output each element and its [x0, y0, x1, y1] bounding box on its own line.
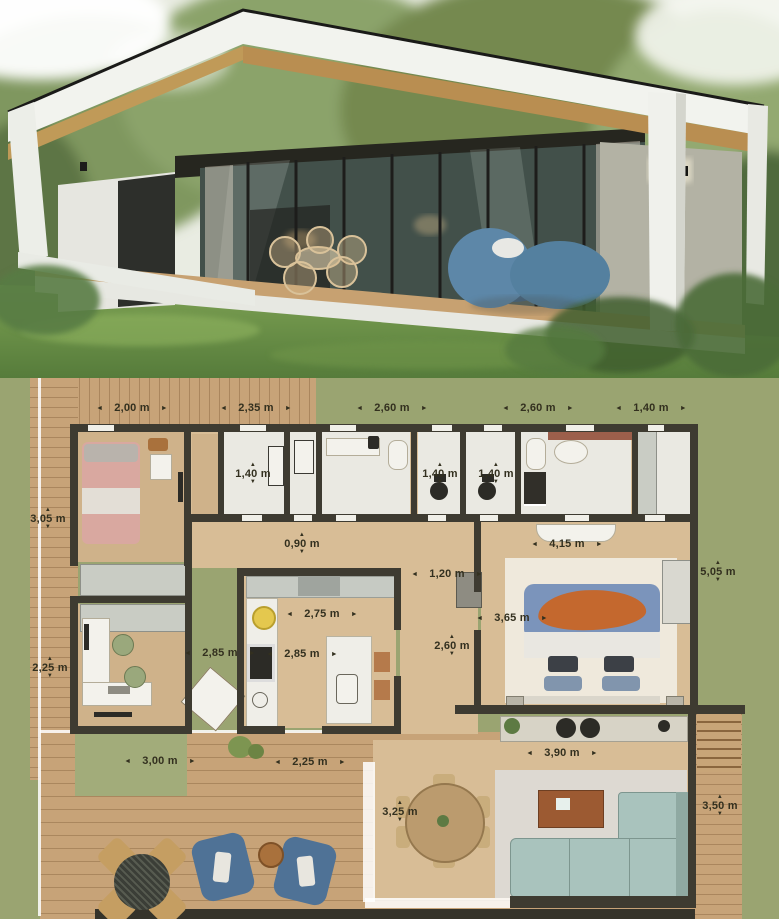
wall-west-office	[70, 596, 78, 734]
glass-wall-living-west	[363, 762, 375, 902]
wall-kitchen-east-b	[394, 676, 401, 734]
wardrobe-bedroom1	[80, 564, 188, 596]
wall-office-east	[185, 520, 192, 734]
office-chair-1	[112, 634, 134, 656]
bed-single-blanket	[82, 488, 140, 514]
dim-wc1: 1,40 m	[422, 462, 457, 486]
bed-pillow-dark-2	[604, 656, 634, 672]
deck-plant-2	[248, 744, 264, 759]
kitchen-appliance-icon	[252, 692, 268, 708]
deck-edge-left	[38, 378, 41, 916]
wall-west-bedroom1	[70, 424, 78, 566]
sofa-chaise	[618, 792, 680, 844]
wall-office-north	[70, 596, 190, 603]
lounger-2-pillow	[296, 855, 315, 887]
bath2-toilet-icon	[526, 438, 546, 470]
sideboard-bowl-1-icon	[556, 718, 576, 738]
bedroom1-table	[150, 454, 172, 480]
coffee-table-decor	[556, 798, 570, 810]
bed-double	[524, 584, 660, 704]
outdoor-dining-set	[100, 840, 184, 919]
dim-deck-hall: 2,25 m	[274, 756, 346, 768]
wall-east	[690, 424, 698, 713]
dim-right-1: 5,05 m	[700, 560, 735, 584]
kitchen-hood-icon	[298, 576, 340, 596]
dining-plant-icon	[437, 815, 449, 827]
window-3	[330, 425, 356, 431]
wall-office-south	[70, 726, 192, 734]
window-5	[484, 425, 502, 431]
dim-living-width: 3,90 m	[526, 747, 598, 759]
lounger-1-pillow	[213, 851, 232, 883]
bath1-toilet-icon	[388, 440, 408, 470]
coffee-table	[538, 790, 604, 828]
kitchen-sink-bowl-icon	[252, 606, 276, 630]
wall-v4	[411, 424, 417, 522]
sofa-back	[676, 792, 688, 896]
window-4	[432, 425, 452, 431]
door-wc1	[428, 515, 446, 521]
dim-deck-office: 3,00 m	[124, 755, 196, 767]
window-1	[88, 425, 114, 431]
floor-plan: 2,00 m 2,35 m 2,60 m 2,60 m 1,40 m 3,05 …	[0, 378, 779, 919]
dim-right-2: 3,50 m	[702, 794, 737, 818]
sofa-main	[510, 838, 690, 898]
bed-single-pillow	[84, 444, 138, 462]
entry-stairs	[697, 714, 741, 772]
master-wardrobe	[662, 560, 692, 624]
window-2	[240, 425, 266, 431]
office-chair-2	[124, 666, 146, 688]
bed-headboard	[524, 696, 660, 704]
wall-v6	[515, 424, 521, 522]
wall-kitchen-east-a	[394, 568, 401, 630]
bed-pillow-blue-2	[602, 676, 640, 691]
dim-bed-width: 3,65 m	[476, 612, 548, 624]
dim-kitchen-run-left: 2,85 m	[184, 647, 256, 659]
bath1-shower-icon	[368, 436, 379, 449]
dim-master-width: 4,15 m	[531, 538, 603, 550]
wall-living-east	[688, 714, 696, 908]
wall-v2	[284, 424, 290, 522]
dim-left-1: 3,05 m	[30, 507, 65, 531]
bed-sheet	[524, 632, 660, 658]
wall-master-west-b	[474, 630, 481, 713]
wall-master-west-a	[474, 520, 481, 592]
door-bathroom2	[565, 515, 589, 521]
bath2-shelf-icon	[524, 472, 546, 506]
outdoor-table	[114, 854, 170, 910]
bed-pillow-blue-1	[544, 676, 582, 691]
door-closet	[242, 515, 262, 521]
wall-north	[70, 424, 698, 432]
wall-living-south	[510, 896, 696, 908]
wall-v7	[632, 424, 638, 522]
office-laptop-icon	[108, 686, 130, 694]
dim-left-2: 2,25 m	[32, 656, 67, 680]
sideboard-bowl-2-icon	[580, 718, 600, 738]
bath2-counter	[548, 432, 632, 440]
bar-stool-2	[374, 680, 390, 700]
dim-top-5: 1,40 m	[615, 402, 687, 414]
dim-kitchen-width: 2,75 m	[286, 608, 358, 620]
bedroom1-tv-icon	[178, 472, 183, 502]
office-monitor-icon	[84, 624, 89, 650]
dim-dining-depth: 3,25 m	[382, 800, 417, 824]
door-cabinet	[294, 515, 312, 521]
door-wc2	[480, 515, 498, 521]
sideboard-lamp-icon	[658, 720, 670, 732]
dim-top-3: 2,60 m	[356, 402, 428, 414]
sideboard-plant-icon	[504, 718, 520, 734]
house-photo-svg	[0, 0, 779, 378]
side-table-round	[258, 842, 284, 868]
wall-kitchen-north	[237, 568, 401, 576]
bath2-sink-icon	[554, 440, 588, 464]
deck-bottom-border	[95, 909, 695, 919]
dim-closet: 1,40 m	[235, 462, 270, 486]
cabinet-icon	[294, 440, 314, 474]
bedroom1-bench	[148, 438, 168, 451]
entry-closet-cabinet	[637, 430, 657, 520]
floor-walkin	[192, 434, 220, 518]
dim-top-1: 2,00 m	[96, 402, 168, 414]
bar-stool-1	[374, 652, 390, 672]
dim-corridor: 2,60 m	[434, 634, 469, 658]
door-bathroom1	[336, 515, 356, 521]
dim-kitchen-run-right: 2,85 m	[266, 648, 338, 660]
wall-kitchen-south-b	[322, 726, 401, 734]
dim-passage: 1,20 m	[411, 568, 483, 580]
wall-v5	[460, 424, 466, 522]
door-entry-closet	[645, 515, 665, 521]
island-sink-icon	[336, 674, 358, 704]
window-7	[648, 425, 664, 431]
wall-master-south	[455, 705, 745, 714]
wall-sconce-left-icon	[80, 162, 87, 171]
dim-top-2: 2,35 m	[220, 402, 292, 414]
window-6	[566, 425, 594, 431]
wall-v1	[218, 424, 224, 522]
wall-v3	[316, 424, 322, 522]
dim-hall: 0,90 m	[284, 532, 319, 556]
dim-wc2: 1,40 m	[478, 462, 513, 486]
wall-kitchen-south-a	[237, 726, 285, 734]
house-photo	[0, 0, 779, 378]
glass-door-living-south	[365, 898, 510, 908]
screenshot-root: 2,00 m 2,35 m 2,60 m 2,60 m 1,40 m 3,05 …	[0, 0, 779, 919]
dim-top-4: 2,60 m	[502, 402, 574, 414]
office-tv-icon	[94, 712, 132, 717]
bed-pillow-dark-1	[548, 656, 578, 672]
